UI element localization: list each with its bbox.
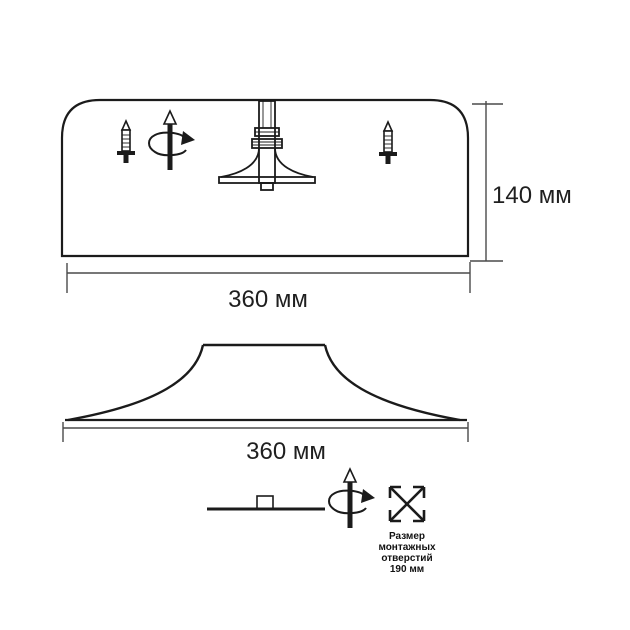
caption-line: монтажных [378,542,436,553]
caption-line: отверстий [381,553,432,564]
mount-knob [257,496,273,509]
caption-line: 190 мм [390,564,424,575]
screw-icon [117,121,135,163]
screw-icon [379,122,397,164]
drawing-svg: 140 мм 360 мм 360 мм Размер [0,0,630,630]
technical-drawing: 140 мм 360 мм 360 мм Размер [0,0,630,630]
profile-left-curve [68,345,203,420]
width-dimension-front: 360 мм [67,262,470,313]
width-dimension-front-label: 360 мм [228,286,308,313]
mounting-holes-icon [390,487,424,521]
height-dimension-label: 140 мм [492,182,572,209]
caption-line: Размер [389,531,425,542]
lamp-body-outline [62,100,468,256]
width-dimension-profile: 360 мм [63,422,468,465]
width-dimension-profile-label: 360 мм [246,438,326,465]
mounting-holes-caption: Размер монтажных отверстий 190 мм [378,531,436,575]
front-view [62,100,468,256]
mounting-side-view [207,496,325,509]
height-dimension: 140 мм [470,101,572,261]
rotation-axis-icon [329,469,375,528]
mount-bracket-icon [219,101,315,190]
profile-right-curve [325,345,460,420]
rotation-axis-icon [149,111,195,170]
profile-view [65,345,467,420]
